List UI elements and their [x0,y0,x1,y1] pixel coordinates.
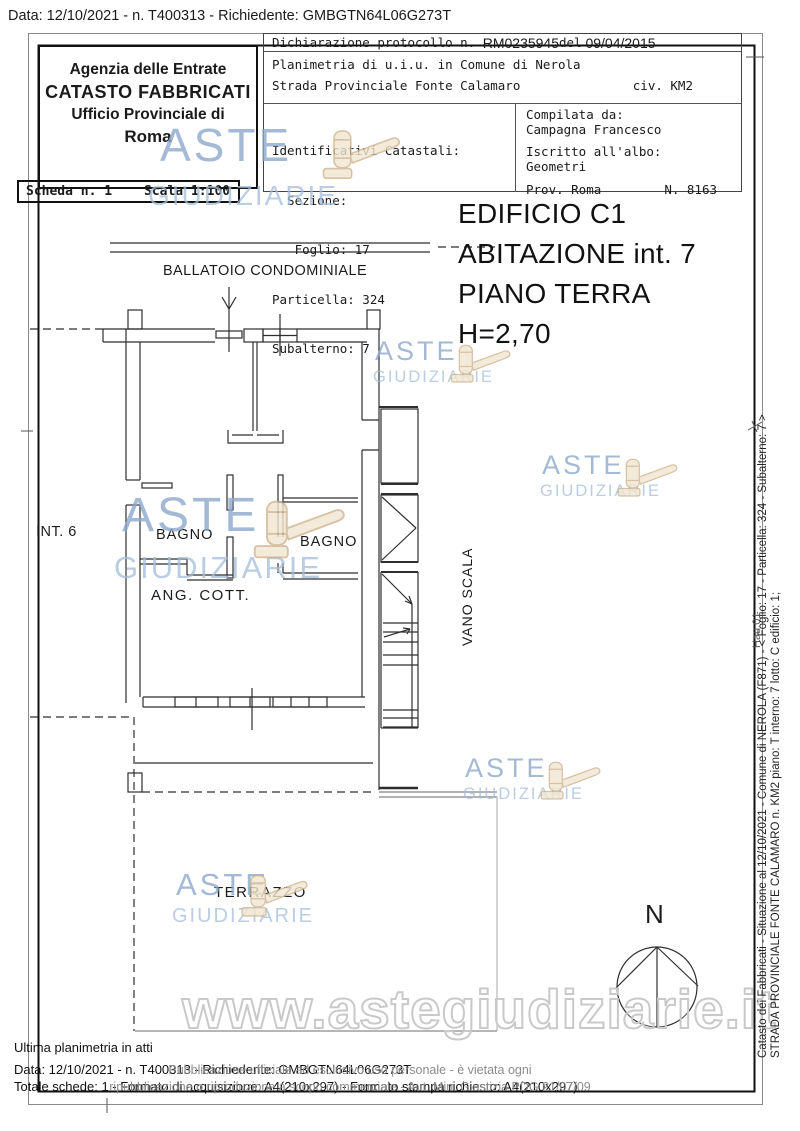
planimetria-line: Planimetria di u.i.u. in Comune di Nerol… [272,57,733,72]
gavel-icon [450,342,512,386]
north-label: N [645,899,664,930]
gavel-icon [322,126,402,184]
piano-title: PIANO TERRA [458,274,696,314]
disclaimer-line-2: ripubblicazione o riproduzione a scopo c… [0,1080,700,1094]
scheda-number: Scheda n. 1 [26,184,144,199]
gavel-icon [250,497,350,563]
cadastral-floorplan-document: { "header": { "data_line": "Data: 12/10/… [0,0,800,1131]
side-overlay-text: Hau.01 [751,613,763,648]
side-line-catasto: Catasto dei Fabbricati - Situazione al 1… [757,414,770,1058]
gavel-icon [540,759,602,803]
int6-label: INT. 6 [36,524,77,540]
albo-value: Geometri [526,160,731,175]
document-date-header: Data: 12/10/2021 - n. T400313 - Richiede… [8,8,451,24]
gavel-icon [240,872,310,920]
wall-bottom [143,688,365,730]
street-name: Strada Provinciale Fonte Calamaro [272,78,520,93]
dichiarazione-label: Dichiarazione protocollo n. [272,35,483,50]
side-margin-text: Catasto dei Fabbricati - Situazione al 1… [757,414,783,1058]
agency-name: Agenzia delle Entrate [70,61,227,79]
ballatoio-label: BALLATOIO CONDOMINIALE [150,263,380,279]
gavel-icon [617,456,679,500]
del-label: del [559,35,582,50]
protocol-number: RM0235945 [483,35,559,51]
watermark-aste-text: ASTE [160,122,338,168]
staircase [381,572,418,728]
watermark-url: www.astegiudiziarie.it [182,977,777,1041]
vano-scala-label: VANO SCALA [459,546,475,646]
civic-number: civ. KM2 [633,78,693,93]
iscritto-label: Iscritto all'albo: [526,145,731,160]
compilatore-name: Campagna Francesco [526,123,731,138]
wall-right [362,329,379,790]
ang-cott-label: ANG. COTT. [151,587,250,604]
side-line-strada: STRADA PROVINCIALE FONTE CALAMARO n. KM2… [770,414,783,1058]
compilatore-section: Compilata da: Campagna Francesco Iscritt… [515,104,741,192]
watermark-1: ASTE GIUDIZIARIE [160,122,338,210]
edificio-title: EDIFICIO C1 [458,194,696,234]
disclaimer-line-1: Pubblicazione ufficiale ad esclusivo uso… [0,1063,700,1077]
address-section: Planimetria di u.i.u. in Comune di Nerol… [264,52,741,104]
catasto-fabbricati-title: CATASTO FABBRICATI [45,82,251,103]
stairwell [379,407,497,797]
watermark-giudiziarie-text: GIUDIZIARIE [148,182,338,210]
ultima-planimetria-line: Ultima planimetria in atti [14,1040,153,1055]
compilata-da-label: Compilata da: [526,108,731,123]
protocol-date: 09/04/2015 [582,35,656,51]
drawing-title-block: EDIFICIO C1 ABITAZIONE int. 7 PIANO TERR… [458,194,696,354]
dichiarazione-row: Dichiarazione protocollo n. RM0235945del… [264,34,741,52]
abitazione-title: ABITAZIONE int. 7 [458,234,696,274]
